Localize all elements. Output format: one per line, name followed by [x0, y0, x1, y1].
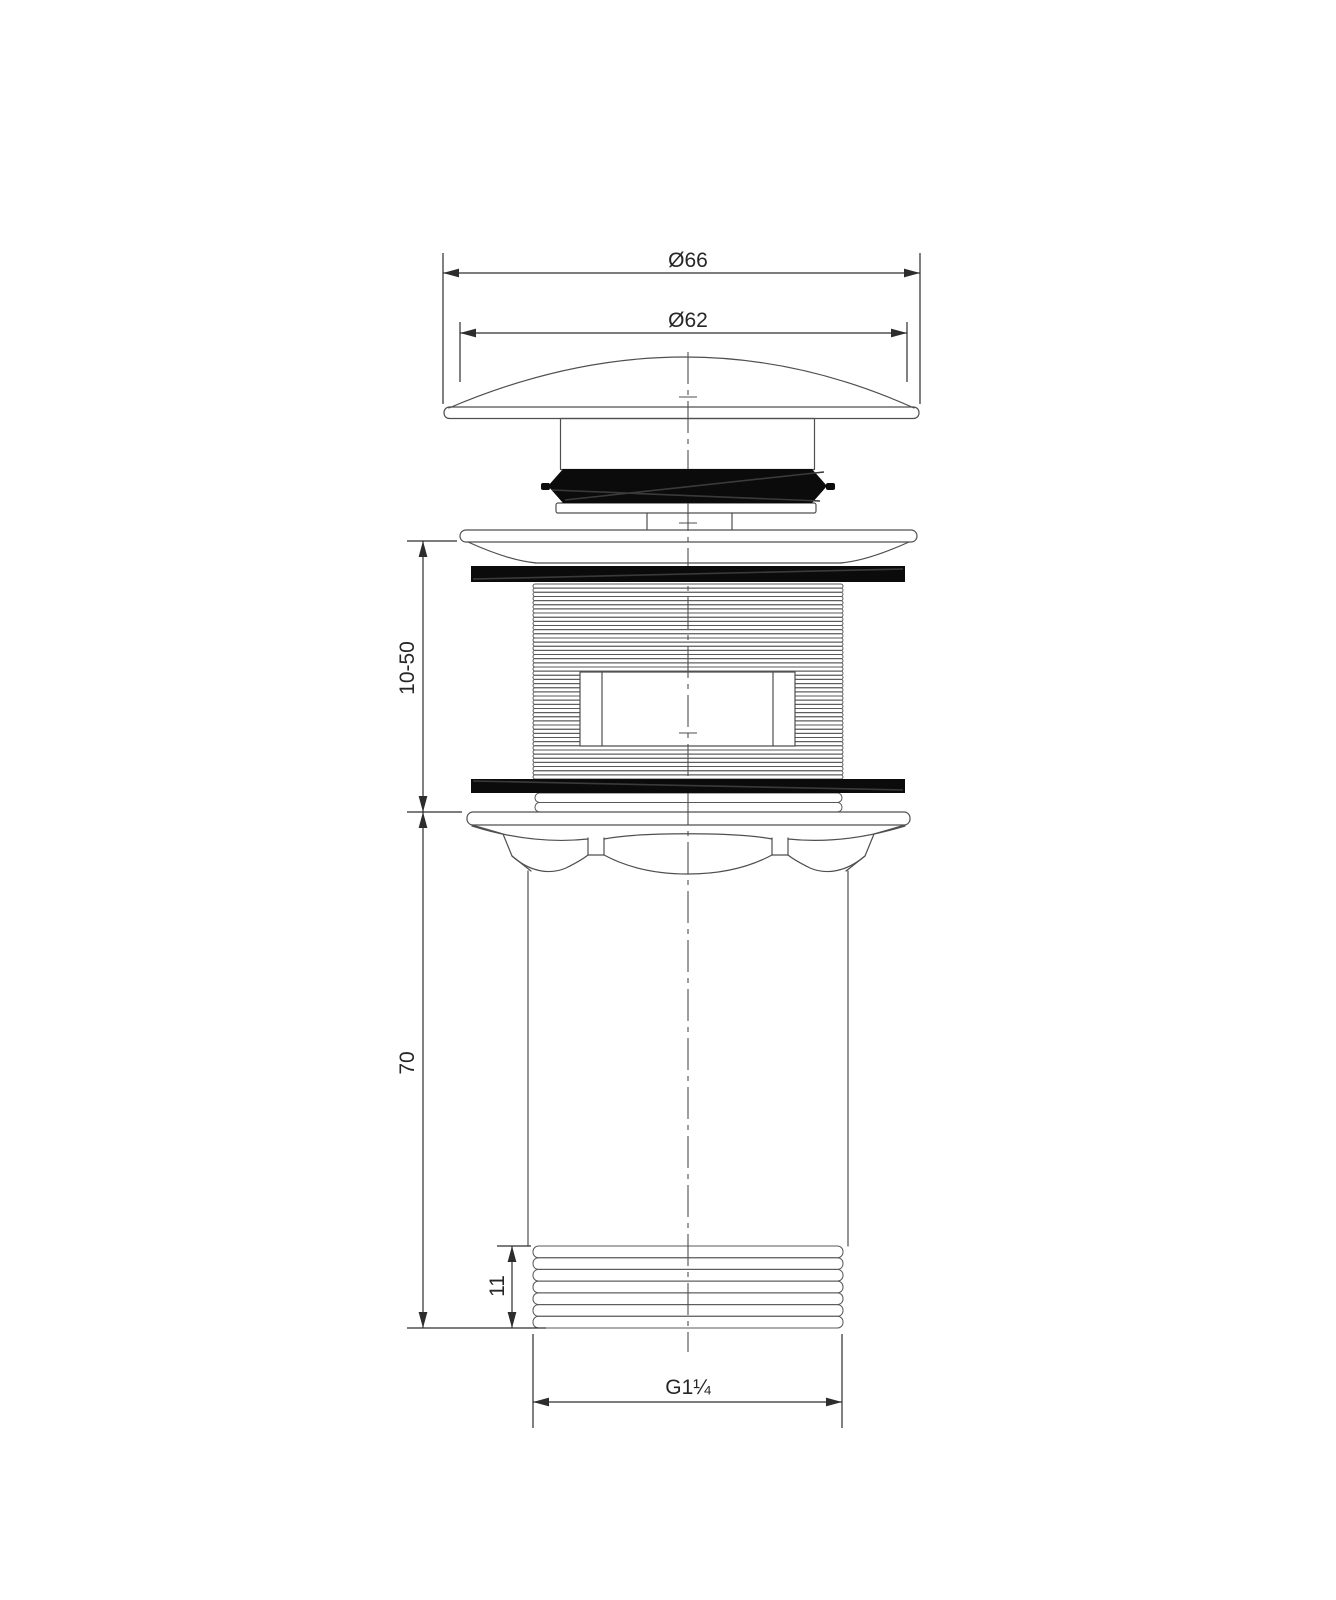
dim-cap-outer-label: Ø66: [668, 249, 708, 272]
dim-thread-length-label: 11: [486, 1275, 509, 1297]
dim-body-length: 70: [396, 812, 546, 1328]
sealing-washer-bottom: [471, 779, 905, 793]
dim-cap-inner: Ø62: [460, 309, 907, 382]
technical-drawing-page: Ø66 Ø62 10-50 70 11 G1¼: [0, 0, 1336, 1600]
cap-rim: [444, 407, 919, 419]
plug-seal: [541, 469, 835, 503]
dim-clamping-range: 10-50: [396, 541, 457, 812]
sealing-washer-top: [471, 566, 905, 582]
plug-seal-left-tip: [541, 483, 550, 490]
dim-thread-size-label: G1¼: [665, 1376, 711, 1399]
nut-right-edge: [846, 825, 905, 871]
waste-valve-technical-drawing: Ø66 Ø62 10-50 70 11 G1¼: [0, 0, 1336, 1600]
seal-carrier: [556, 503, 816, 531]
plug-seal-right-tip: [826, 483, 835, 490]
push-cap: [444, 357, 919, 470]
dim-clamping-label: 10-50: [396, 641, 419, 695]
seal-stem: [647, 513, 732, 531]
cap-dome-outline: [449, 357, 914, 408]
seal-plate: [556, 503, 816, 513]
dim-thread-length: 11: [486, 1246, 531, 1328]
dim-body-label: 70: [396, 1051, 419, 1074]
dim-cap-inner-label: Ø62: [668, 309, 708, 332]
